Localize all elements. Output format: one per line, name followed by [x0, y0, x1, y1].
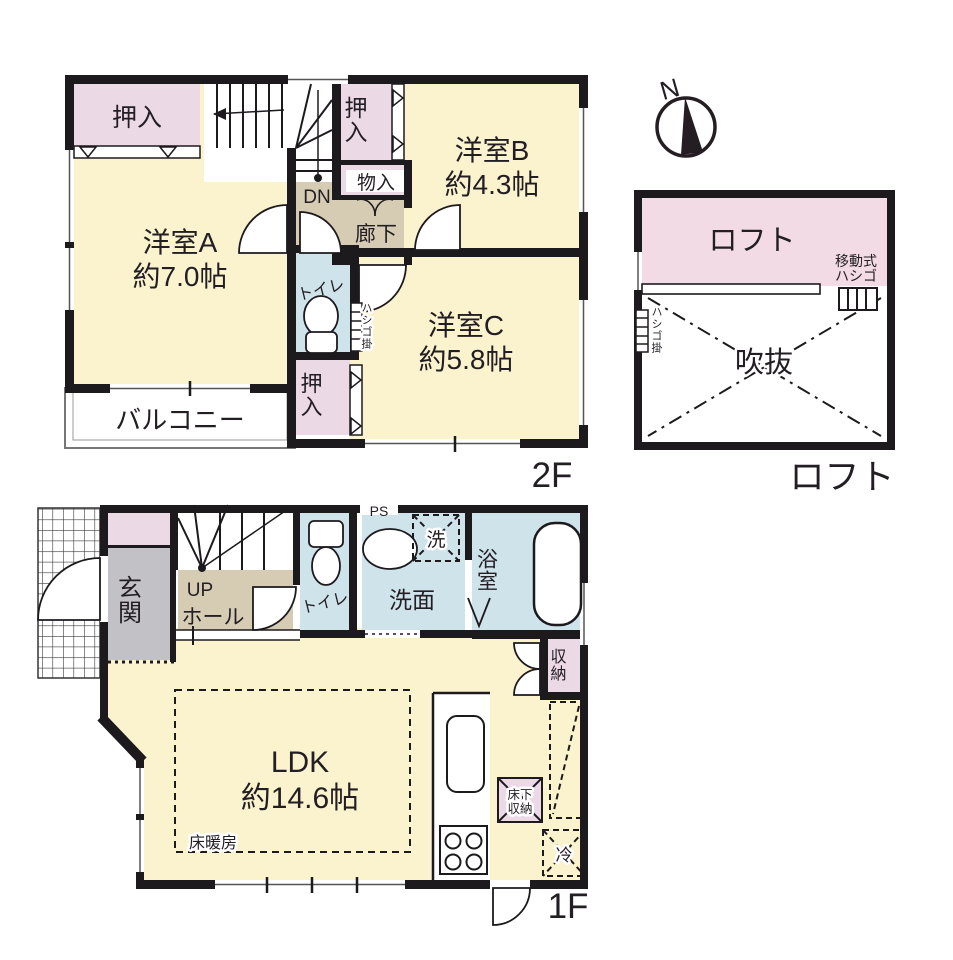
- floorplan-page: 押入 押入 物入 廊下 DN 洋室A 約7.0帖 洋室B 約4.3帖 洋室C 約…: [0, 0, 953, 960]
- first-floor-plan: 玄関 UP ホール トイレ PS 洗 洗面 浴室 収納 LDK 約14.6帖 床…: [38, 503, 588, 926]
- ldk-name: LDK: [271, 746, 329, 779]
- f2-dn-label: DN: [303, 187, 330, 208]
- underfloor-label-2: 収納: [507, 802, 532, 816]
- sink-fixture: [363, 529, 417, 569]
- loft-edge: [642, 284, 820, 294]
- compass-north-label: N: [657, 72, 683, 106]
- f1-storage-label: 収納: [548, 648, 567, 682]
- up-label: UP: [187, 580, 213, 601]
- loft-area-label: ロフト: [708, 225, 795, 257]
- f2-room-b-size: 約4.3帖: [445, 169, 540, 200]
- f2-closet-bottom-label: 押入: [298, 372, 323, 418]
- loft-plan: N ロフト 移動式 ハシゴ ハシゴ掛 吹抜 ロフト: [634, 72, 895, 497]
- f2-room-b-name: 洋室B: [455, 135, 530, 166]
- floor-heating-label: 床暖房: [189, 834, 237, 852]
- bathtub-fixture: [534, 523, 581, 625]
- balcony-label: バルコニー: [115, 405, 244, 435]
- stove: [440, 826, 487, 874]
- kitchen-sink: [447, 716, 484, 792]
- movable-ladder-label-1: 移動式: [835, 253, 877, 269]
- entrance-label: 玄関: [114, 575, 141, 625]
- compass-icon: N: [657, 72, 715, 156]
- f2-closet-top-left-label: 押入: [112, 104, 162, 132]
- f2-room-a-name: 洋室A: [143, 227, 218, 258]
- ps-label: PS: [370, 503, 389, 519]
- loft-ladder-hook-label: ハシゴ掛: [650, 306, 663, 354]
- fridge-label: 冷: [556, 846, 573, 865]
- underfloor-label-1: 床下: [507, 788, 532, 802]
- f2-floor-label: 2F: [532, 456, 573, 495]
- f1-floor-label: 1F: [548, 887, 589, 926]
- loft-ladder-hook-icon: [636, 310, 648, 352]
- f2-room-c-size: 約5.8帖: [419, 344, 514, 375]
- f2-ladder-hook-label: ハシゴ掛: [360, 302, 373, 350]
- f2-room-a-size: 約7.0帖: [133, 261, 228, 292]
- f2-toilet-fixture: [304, 296, 338, 353]
- void-label: 吹抜: [735, 346, 793, 379]
- floor-plan-svg: 押入 押入 物入 廊下 DN 洋室A 約7.0帖 洋室B 約4.3帖 洋室C 約…: [0, 0, 953, 960]
- loft-window: [634, 252, 642, 290]
- loft-floor-label: ロフト: [789, 458, 894, 497]
- f2-storage-small-label: 物入: [357, 172, 395, 194]
- f2-closet-top-mid-label: 押入: [341, 96, 368, 144]
- f2-room-c-name: 洋室C: [428, 310, 504, 341]
- washer-label: 洗: [426, 529, 445, 551]
- f2-corridor-label: 廊下: [355, 223, 397, 246]
- hall-label: ホール: [182, 606, 245, 629]
- bathroom-label: 浴室: [475, 548, 499, 592]
- movable-ladder-label-2: ハシゴ: [835, 268, 877, 284]
- loft-movable-ladder-icon: [839, 288, 877, 310]
- kitchen-counter: [433, 693, 490, 880]
- ldk-size: 約14.6帖: [241, 782, 359, 815]
- second-floor-plan: 押入 押入 物入 廊下 DN 洋室A 約7.0帖 洋室B 約4.3帖 洋室C 約…: [65, 75, 588, 495]
- washroom-label: 洗面: [389, 587, 435, 613]
